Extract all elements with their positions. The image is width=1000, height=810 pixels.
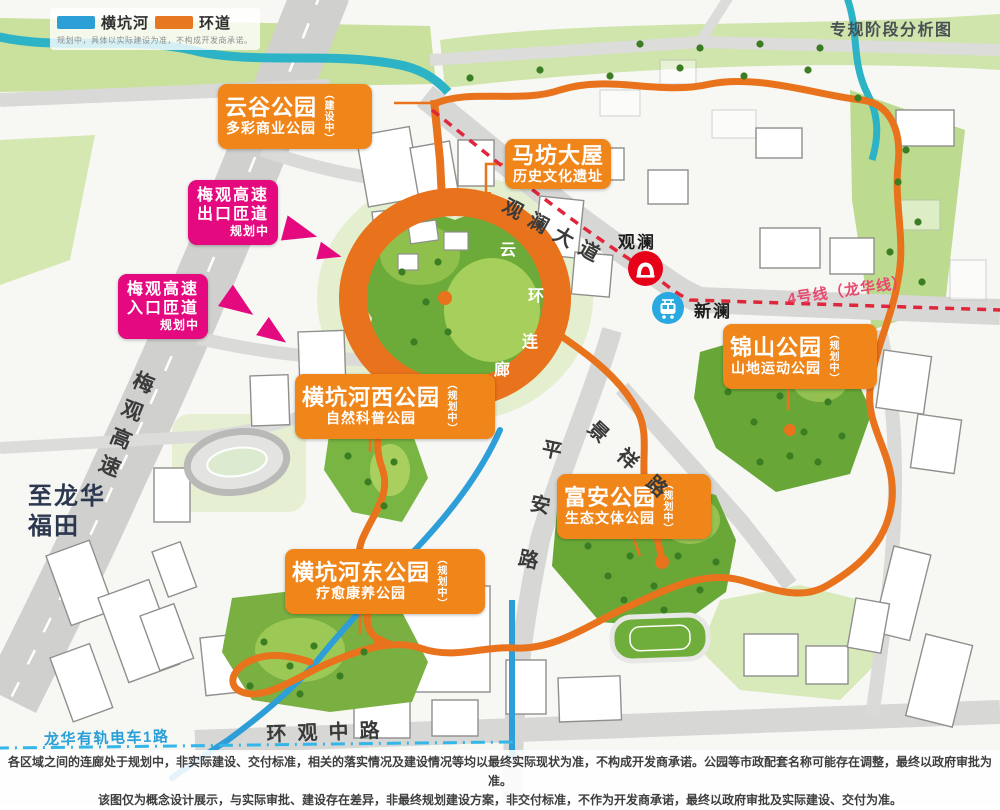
- tram-station-label: 新澜: [694, 297, 732, 322]
- ramp-line: 梅观高速: [197, 186, 269, 205]
- park-status: （建设中）: [320, 89, 335, 144]
- ramp-line: 入口匝道: [127, 299, 199, 318]
- park-status: （规划中）: [443, 379, 458, 434]
- park-name: 锦山公园: [730, 336, 822, 361]
- park-subtitle: 历史文化遗址: [512, 169, 604, 185]
- map-canvas: [0, 0, 1000, 804]
- map-title: 专规阶段分析图: [830, 16, 953, 40]
- park-status: （规划中）: [825, 329, 840, 384]
- ramp-label-entry: 梅观高速 入口匝道 规划中: [118, 274, 208, 339]
- park-name: 云谷公园: [225, 96, 317, 121]
- ring-corridor-char: 云: [500, 236, 516, 260]
- tram-icon: [651, 291, 685, 330]
- park-name: 横坑河东公园: [292, 561, 430, 586]
- to-longhua-line1: 至龙华: [28, 482, 106, 512]
- ramp-line: 出口匝道: [197, 205, 269, 224]
- ring-corridor-char: 环: [528, 282, 544, 306]
- park-subtitle: 山地运动公园: [730, 361, 822, 377]
- road-label-to-longhua-futian: 至龙华 福田: [28, 482, 106, 542]
- park-label-hengkeng-west: 横坑河西公园 自然科普公园 （规划中）: [295, 374, 495, 439]
- ramp-line: 梅观高速: [127, 280, 199, 299]
- footer-disclaimer-line1: 各区域之间的连廊处于规划中，非实际建设、交付标准，相关的落实情况及建设情况等均以…: [0, 753, 1000, 791]
- park-subtitle: 生态文体公园: [564, 511, 656, 527]
- park-label-yungu: 云谷公园 多彩商业公园 （建设中）: [218, 84, 372, 149]
- footer-disclaimer: 各区域之间的连廊处于规划中，非实际建设、交付标准，相关的落实情况及建设情况等均以…: [0, 753, 1000, 810]
- park-subtitle: 疗愈康养公园: [292, 586, 430, 602]
- tram-line-label: 龙华有轨电车1路: [44, 725, 170, 749]
- park-subtitle: 多彩商业公园: [225, 121, 317, 137]
- legend-note: 规划中，具体以实际建设为准，不构成开发商承诺。: [57, 35, 253, 46]
- park-label-jinshan: 锦山公园 山地运动公园 （规划中）: [723, 324, 877, 389]
- road-label-huanguan-middle: 环观中路: [266, 714, 391, 747]
- legend-swatch-hengkeng-river: [57, 16, 95, 29]
- to-longhua-line2: 福田: [28, 512, 106, 542]
- park-name: 马坊大屋: [512, 144, 604, 169]
- legend-label-ring: 环道: [199, 12, 231, 33]
- park-label-mafang: 马坊大屋 历史文化遗址: [505, 139, 611, 189]
- map-stage: 横坑河 环道 规划中，具体以实际建设为准，不构成开发商承诺。 专规阶段分析图 云…: [0, 0, 1000, 804]
- park-subtitle: 自然科普公园: [302, 411, 440, 427]
- legend: 横坑河 环道 规划中，具体以实际建设为准，不构成开发商承诺。: [50, 8, 260, 50]
- park-status: （规划中）: [433, 554, 448, 609]
- ramp-status: 规划中: [127, 318, 199, 332]
- park-label-hengkeng-east: 横坑河东公园 疗愈康养公园 （规划中）: [285, 549, 485, 614]
- ring-corridor-char: 连: [522, 328, 538, 352]
- park-label-fuan: 富安公园 生态文体公园 （规划中）: [557, 474, 711, 539]
- ramp-label-exit: 梅观高速 出口匝道 规划中: [188, 180, 278, 245]
- footer-disclaimer-line2: 该图仅为概念设计展示，与实际审批、建设存在差异，非最终规划建设方案，非交付标准，…: [0, 791, 1000, 810]
- metro-icon: [627, 250, 664, 292]
- legend-swatch-ring-road: [155, 16, 193, 29]
- ring-corridor-char: 廊: [494, 356, 510, 380]
- ramp-status: 规划中: [197, 224, 269, 238]
- legend-label-river: 横坑河: [101, 12, 149, 33]
- park-name: 横坑河西公园: [302, 386, 440, 411]
